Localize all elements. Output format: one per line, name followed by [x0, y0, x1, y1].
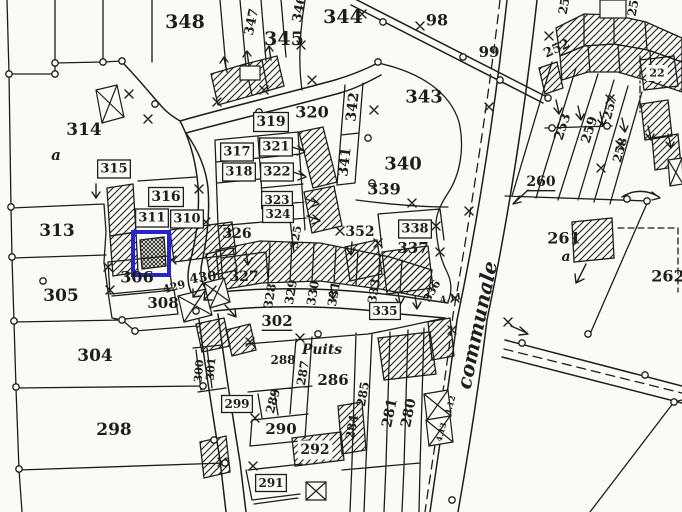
map-label-330: 330 [304, 279, 322, 306]
svg-text:25: 25 [625, 0, 642, 17]
map-label-25: 25 [625, 0, 642, 17]
map-label-311: 311 [136, 209, 169, 227]
svg-text:322: 322 [263, 165, 290, 180]
svg-text:327: 327 [229, 269, 258, 285]
map-label-286: 286 [317, 371, 348, 389]
svg-text:25: 25 [556, 0, 573, 15]
svg-text:302: 302 [261, 312, 292, 330]
map-label-320: 320 [295, 103, 328, 122]
svg-text:340: 340 [384, 154, 422, 175]
svg-text:320: 320 [295, 103, 328, 122]
svg-text:313: 313 [39, 221, 75, 241]
svg-text:98: 98 [426, 11, 448, 30]
map-label-puits: Puits [301, 342, 342, 358]
map-label-298: 298 [96, 420, 132, 440]
map-label-326: 326 [222, 226, 251, 242]
svg-text:341: 341 [335, 147, 354, 178]
svg-text:318: 318 [225, 165, 252, 180]
map-label-321: 321 [260, 138, 293, 156]
map-label-315: 315 [98, 160, 131, 178]
svg-text:288: 288 [270, 353, 295, 367]
svg-text:324: 324 [265, 207, 290, 221]
map-label-331: 331 [325, 280, 343, 307]
map-label-a: a [561, 249, 570, 265]
svg-text:347: 347 [242, 7, 262, 37]
svg-text:a: a [561, 249, 570, 265]
map-label-316: 316 [149, 188, 184, 207]
svg-text:333: 333 [365, 277, 383, 304]
map-label-304: 304 [77, 346, 113, 366]
map-label-299: 299 [222, 396, 253, 413]
svg-text:343: 343 [405, 87, 443, 108]
svg-text:331: 331 [325, 280, 343, 307]
selected-building[interactable] [140, 237, 166, 269]
map-label-310: 310 [171, 210, 204, 228]
svg-text:326: 326 [222, 226, 251, 242]
cadastral-map-canvas: 3483473463453449899343342341340339320319… [0, 0, 682, 512]
svg-text:429: 429 [161, 278, 187, 297]
svg-text:292: 292 [300, 442, 329, 458]
map-label-317: 317 [221, 143, 254, 161]
map-label-322: 322 [261, 163, 294, 181]
svg-text:291: 291 [258, 476, 283, 490]
map-label-301: 301 [204, 357, 219, 381]
map-label-429: 429 [161, 278, 187, 297]
map-label-318: 318 [223, 163, 256, 181]
map-label-348: 348 [165, 11, 205, 33]
svg-text:257: 257 [600, 93, 620, 121]
svg-text:335: 335 [372, 304, 397, 318]
svg-text:289: 289 [263, 387, 283, 415]
svg-text:308: 308 [147, 294, 178, 312]
map-label-258: 258 [610, 136, 630, 164]
map-label-328: 328 [261, 282, 279, 309]
map-label-290: 290 [265, 420, 296, 438]
svg-text:310: 310 [173, 212, 200, 227]
svg-text:305: 305 [43, 286, 79, 306]
svg-text:262: 262 [651, 267, 682, 286]
map-label-292: 292 [298, 441, 333, 460]
map-label-22: 22 [646, 65, 668, 81]
svg-text:286: 286 [317, 371, 348, 389]
svg-text:348: 348 [165, 11, 205, 33]
svg-text:346: 346 [290, 0, 310, 24]
map-label-261: 261 [547, 229, 580, 248]
map-label-4.11: 4.11 [439, 292, 462, 306]
svg-text:316: 316 [151, 189, 180, 205]
svg-text:304: 304 [77, 346, 113, 366]
map-label-333: 333 [365, 277, 383, 304]
svg-text:4.11: 4.11 [439, 292, 462, 306]
svg-text:306: 306 [120, 268, 153, 287]
map-label-communale: communale [452, 259, 503, 391]
svg-text:a: a [51, 146, 61, 164]
map-label-25: 25 [556, 0, 573, 15]
map-label-a: a [51, 146, 61, 164]
svg-text:352: 352 [345, 224, 374, 240]
svg-text:315: 315 [100, 162, 127, 177]
map-label-262: 262 [651, 267, 682, 286]
svg-text:311: 311 [138, 211, 165, 226]
svg-text:338: 338 [401, 222, 428, 237]
svg-text:299: 299 [224, 397, 249, 411]
svg-text:330: 330 [304, 279, 322, 306]
svg-text:321: 321 [262, 140, 289, 155]
map-label-339: 339 [367, 180, 400, 199]
svg-text:314: 314 [66, 120, 102, 140]
svg-text:345: 345 [264, 28, 304, 50]
svg-text:328: 328 [261, 282, 279, 309]
map-label-98: 98 [426, 11, 448, 30]
svg-text:298: 298 [96, 420, 132, 440]
map-label-305: 305 [43, 286, 79, 306]
map-label-99: 99 [479, 43, 500, 61]
svg-text:319: 319 [256, 114, 285, 130]
map-label-313: 313 [39, 221, 75, 241]
map-label-346: 346 [290, 0, 310, 24]
map-label-308: 308 [147, 294, 178, 312]
svg-text:260: 260 [526, 174, 555, 190]
svg-text:317: 317 [223, 145, 250, 160]
svg-text:329: 329 [282, 278, 300, 305]
svg-text:339: 339 [367, 180, 400, 199]
map-label-347: 347 [242, 7, 262, 37]
map-label-288: 288 [270, 353, 295, 367]
map-label-302: 302 [261, 312, 292, 330]
svg-text:280: 280 [398, 397, 420, 429]
svg-text:337: 337 [397, 239, 428, 257]
map-label-257: 257 [600, 93, 620, 121]
map-label-337: 337 [397, 239, 428, 257]
map-label-314: 314 [66, 120, 102, 140]
map-label-329: 329 [282, 278, 300, 305]
map-label-345: 345 [264, 28, 304, 50]
map-label-324: 324 [263, 206, 294, 223]
map-label-338: 338 [399, 220, 432, 238]
svg-text:344: 344 [323, 6, 363, 28]
map-label-289: 289 [263, 387, 283, 415]
map-label-306: 306 [120, 268, 153, 287]
map-label-260: 260 [526, 174, 555, 191]
map-label-341: 341 [335, 147, 354, 178]
svg-text:258: 258 [610, 136, 630, 164]
svg-text:22: 22 [649, 67, 664, 80]
map-label-335: 335 [370, 303, 401, 320]
map-label-344: 344 [323, 6, 363, 28]
map-label-340: 340 [384, 154, 422, 175]
svg-text:290: 290 [265, 420, 296, 438]
svg-text:99: 99 [479, 43, 500, 61]
map-label-291: 291 [256, 475, 287, 492]
cadastral-map: 3483473463453449899343342341340339320319… [0, 0, 682, 512]
map-label-327: 327 [229, 269, 258, 285]
svg-text:communale: communale [452, 259, 503, 391]
svg-text:261: 261 [547, 229, 580, 248]
svg-text:301: 301 [204, 357, 219, 381]
map-label-343: 343 [405, 87, 443, 108]
map-label-319: 319 [254, 113, 289, 132]
map-label-352: 352 [345, 224, 374, 240]
svg-text:Puits: Puits [301, 342, 342, 358]
map-label-280: 280 [398, 397, 420, 429]
